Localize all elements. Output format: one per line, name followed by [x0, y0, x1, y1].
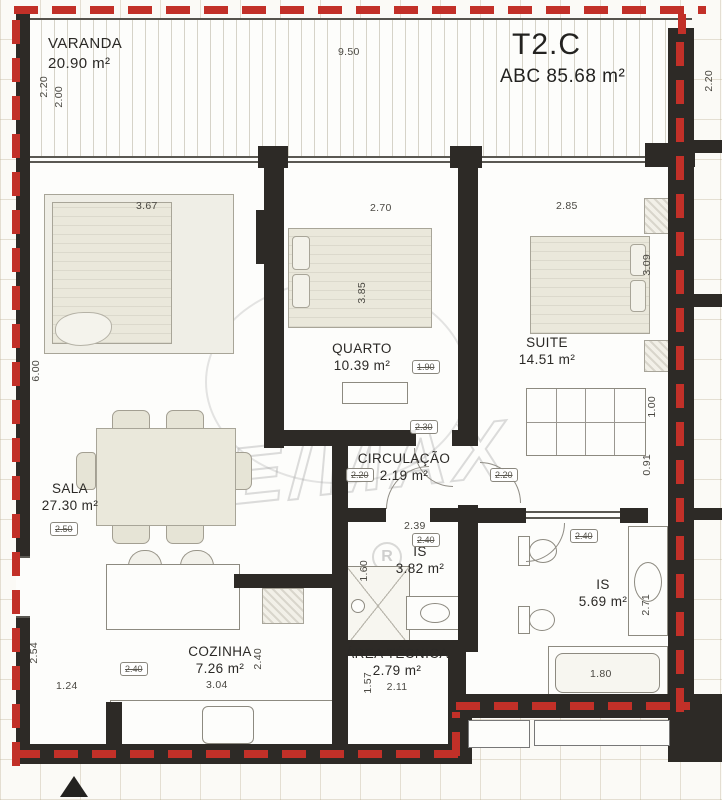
dim-at-width: 2.11	[334, 679, 460, 696]
dim-sala-left: 6.00	[30, 360, 42, 382]
kitchen-column	[262, 588, 304, 624]
dim-quarto-height: 3.85	[356, 282, 368, 304]
room-label-varanda: VARANDA 20.90 m²	[48, 34, 122, 74]
window-below	[468, 720, 530, 748]
room-label-area-tecnica: ÁREA TÉCNICA 2.79 m² 2.11	[334, 645, 460, 696]
suite-nightstand	[644, 340, 670, 372]
dimbox-quarto: 1.90	[412, 360, 440, 374]
dim-cozinha-width: 3.04	[206, 679, 228, 691]
bidet-bowl	[529, 609, 555, 631]
dining-table	[96, 428, 236, 526]
dim-at-height: 1.57	[362, 672, 374, 694]
room-area: 2.79 m²	[334, 662, 460, 679]
pillow	[292, 274, 310, 308]
pillow	[292, 236, 310, 270]
room-name: CIRCULAÇÃO	[338, 450, 470, 467]
suite-nightstand	[644, 198, 670, 234]
dim-entry-width: 1.24	[56, 680, 78, 692]
dim-entry-left: 2.54	[28, 642, 40, 664]
dimbox-circ-left: 2.20	[346, 468, 374, 482]
dim-right-top: 2.20	[703, 70, 715, 92]
entrance-arrow	[60, 776, 88, 797]
wall	[430, 508, 458, 522]
window-sill	[30, 156, 670, 163]
boundary-line-step-v	[452, 712, 460, 756]
shower-drain	[351, 599, 365, 613]
dimbox-cozinha: 2.40	[120, 662, 148, 676]
room-label-suite: SUITE 14.51 m²	[492, 334, 602, 368]
room-name: SUITE	[492, 334, 602, 351]
wall	[478, 508, 526, 523]
dim-is2-height: 2.71	[640, 594, 652, 616]
wall	[106, 702, 122, 744]
kitchen-sink	[202, 706, 254, 744]
dim-balcony-left-b: 2.00	[53, 86, 65, 108]
dim-is1-height: 1.60	[358, 560, 370, 582]
floor-plan-canvas: RE/MAX R	[0, 0, 722, 800]
boundary-line-right	[676, 30, 684, 712]
wall	[264, 150, 284, 448]
neighbor-wall-stub	[694, 508, 722, 520]
room-label-quarto: QUARTO 10.39 m²	[302, 340, 422, 374]
window-below	[534, 720, 670, 746]
dim-quarto-top: 2.70	[370, 202, 392, 214]
room-label-is2: IS 5.69 m²	[568, 576, 638, 610]
boundary-line-top	[14, 6, 706, 14]
room-name: IS	[568, 576, 638, 593]
boundary-line-left	[12, 8, 20, 766]
dimbox-circ-right: 2.20	[490, 468, 518, 482]
boundary-line-bottom	[16, 750, 460, 758]
dimbox-is1: 2.40	[412, 533, 440, 547]
dim-suite-shelf-a: 1.00	[646, 396, 658, 418]
dim-is1-width: 2.39	[404, 520, 426, 532]
dim-balcony-width: 9.50	[338, 46, 360, 58]
room-label-sala: SALA 27.30 m²	[30, 480, 110, 514]
dim-sala-top: 3.67	[136, 200, 158, 212]
shower	[346, 566, 410, 646]
wall	[282, 430, 416, 446]
room-name: SALA	[30, 480, 110, 497]
kitchen-island	[106, 564, 240, 630]
room-name: QUARTO	[302, 340, 422, 357]
dimbox-circ-top: 2.30	[410, 420, 438, 434]
room-label-is1: IS 3.82 m²	[385, 543, 455, 577]
room-area: 5.69 m²	[568, 593, 638, 610]
wall	[234, 574, 340, 588]
wardrobe-divider	[527, 422, 645, 423]
wall	[344, 508, 386, 522]
room-area: 10.39 m²	[302, 357, 422, 374]
dimbox-sala: 2.50	[50, 522, 78, 536]
dim-cozinha-height: 2.40	[252, 648, 264, 670]
room-name: VARANDA	[48, 34, 122, 54]
sliding-door	[526, 511, 620, 519]
dim-balcony-left-a: 2.20	[38, 76, 50, 98]
is1-sink	[420, 603, 450, 623]
dimbox-is2: 2.40	[570, 529, 598, 543]
room-name: ÁREA TÉCNICA	[334, 645, 460, 662]
dim-suite-height: 3.09	[641, 254, 653, 276]
dim-suite-shelf-b: 0.91	[641, 454, 653, 476]
unit-title: T2.C	[512, 28, 581, 62]
room-area: 27.30 m²	[30, 497, 110, 514]
quarto-dresser	[342, 382, 408, 404]
neighbor-wall-stub	[694, 294, 722, 307]
dim-suite-top: 2.85	[556, 200, 578, 212]
dim-bathtub: 1.80	[590, 668, 612, 680]
unit-abc-area: ABC 85.68 m²	[500, 66, 625, 88]
room-area: 3.82 m²	[385, 560, 455, 577]
room-area: 20.90 m²	[48, 54, 122, 74]
balcony-outer-edge	[28, 18, 692, 20]
wall	[620, 508, 648, 523]
pillow	[630, 280, 646, 312]
boundary-line-step-h	[456, 702, 690, 710]
room-area: 14.51 m²	[492, 351, 602, 368]
wall	[452, 430, 478, 446]
suite-wardrobe	[526, 388, 646, 456]
wall	[458, 150, 478, 446]
neighbor-wall-stub	[694, 140, 722, 153]
wall	[256, 210, 284, 264]
wall	[458, 505, 478, 652]
